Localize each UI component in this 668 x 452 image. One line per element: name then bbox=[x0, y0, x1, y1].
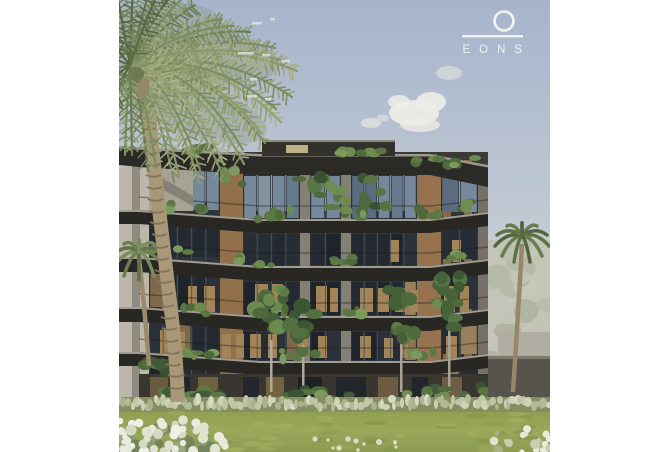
svg-text:EONS: EONS bbox=[463, 44, 532, 56]
